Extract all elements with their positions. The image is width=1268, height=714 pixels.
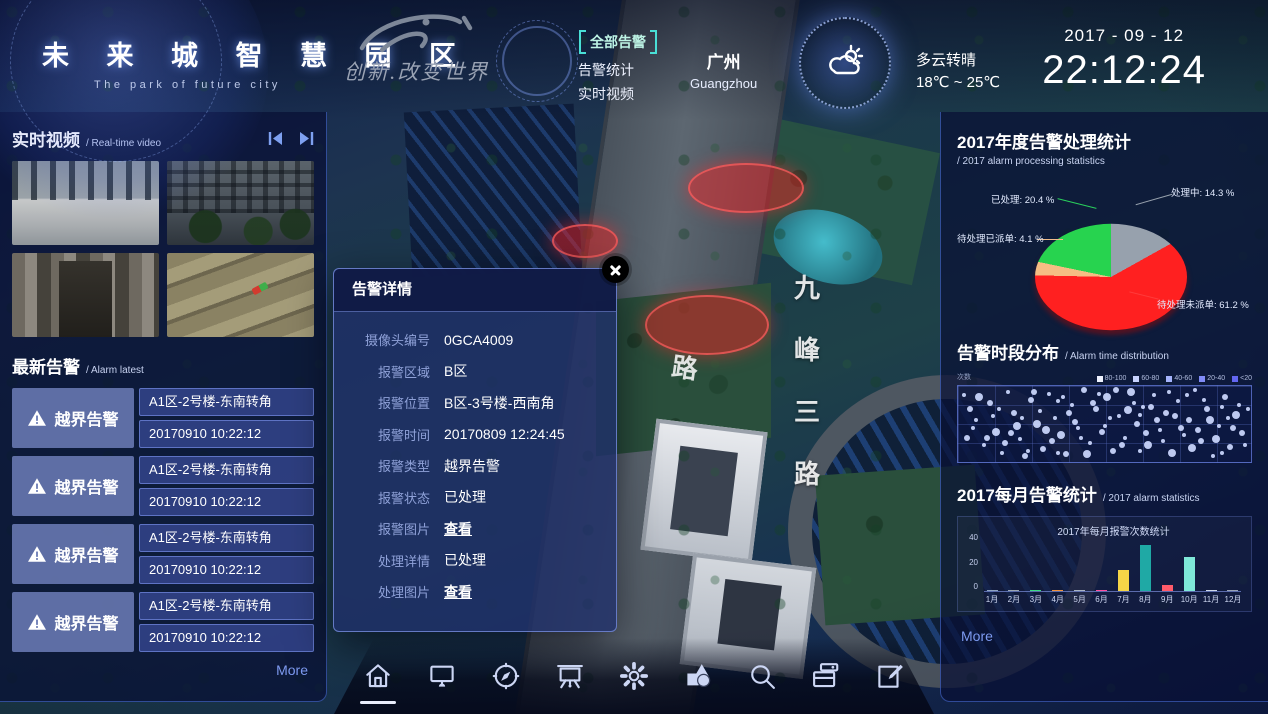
bar-column: 12月 <box>1225 590 1241 592</box>
scatter-dot <box>1168 449 1176 457</box>
view-link[interactable]: 查看 <box>444 519 472 539</box>
bar-column: 1月 <box>984 590 1000 592</box>
field-label: 报警状态 <box>334 488 430 507</box>
legend-item: <20 <box>1232 375 1252 382</box>
ring-decoration <box>502 26 572 96</box>
nav-all-alarms[interactable]: 全部告警 <box>586 33 650 52</box>
city-name-en: Guangzhou <box>690 76 757 91</box>
bar-label: 3月 <box>1030 594 1042 605</box>
warning-icon <box>27 613 47 631</box>
field-value: B区-3号楼-西南角 <box>444 393 554 413</box>
scatter-dot <box>1047 392 1051 396</box>
scatter-dot <box>1222 394 1228 400</box>
settings-gear-icon[interactable] <box>613 655 655 697</box>
bar-label: 10月 <box>1181 594 1198 605</box>
bar-column: 8月 <box>1137 545 1153 591</box>
skip-back-icon[interactable] <box>268 131 284 146</box>
bar-yticks: 40200 <box>964 533 978 591</box>
scatter-dot <box>1123 436 1127 440</box>
alarm-row[interactable]: 越界告警A1区-2号楼-东南转角20170910 10:22:12 <box>12 388 314 448</box>
scatter-dot <box>1006 390 1010 394</box>
scatter-dot <box>1090 400 1096 406</box>
scatter-dot <box>1232 411 1240 419</box>
scatter-dot <box>1134 421 1140 427</box>
scatter-dot <box>1063 451 1069 457</box>
field-value: 0GCA4009 <box>444 332 513 348</box>
nav-alarm-stats[interactable]: 告警统计 <box>578 62 650 79</box>
field-label: 摄像头编号 <box>334 330 430 349</box>
field-label: 报警位置 <box>334 393 430 412</box>
company-slogan: 创新.改变世界 <box>344 56 489 86</box>
pie-section-title: 2017年度告警处理统计 <box>957 128 1131 153</box>
bottom-toolbar <box>334 638 934 714</box>
scatter-plot <box>957 385 1252 463</box>
weather-condition: 多云转晴 <box>916 50 1000 72</box>
field-value: B区 <box>444 361 467 381</box>
scatter-dot <box>1026 449 1030 453</box>
modal-field-row: 报警区域B区 <box>334 356 616 388</box>
alarm-location: A1区-2号楼-东南转角 <box>139 388 314 416</box>
scatter-dot <box>1127 388 1135 396</box>
scatter-dot <box>1083 450 1091 458</box>
modal-field-row: 摄像头编号0GCA4009 <box>334 324 616 356</box>
scatter-dot <box>1144 441 1152 449</box>
modal-field-row: 报警位置B区-3号楼-西南角 <box>334 387 616 419</box>
monitor-icon[interactable] <box>421 655 463 697</box>
datetime-block: 2017 - 09 - 12 22:12:24 <box>1042 26 1206 93</box>
scatter-dot <box>975 393 983 401</box>
modal-fields: 摄像头编号0GCA4009报警区域B区报警位置B区-3号楼-西南角报警时间201… <box>334 312 616 608</box>
scatter-dot <box>1138 413 1142 417</box>
legend-item: 40-60 <box>1166 375 1192 382</box>
stats-more-link[interactable]: More <box>961 628 1252 644</box>
scatter-dot <box>1178 425 1184 431</box>
leader-line <box>1057 198 1096 209</box>
bar-chart: 2017年每月报警次数统计 40200 1月2月3月4月5月6月7月8月9月10… <box>957 516 1252 612</box>
scatter-dot <box>1028 397 1034 403</box>
alarm-time: 20170910 10:22:12 <box>139 488 314 516</box>
field-label: 报警图片 <box>334 519 430 538</box>
bar <box>1118 570 1129 591</box>
modal-field-row: 报警时间20170809 12:24:45 <box>334 419 616 451</box>
scatter-dot <box>1198 438 1204 444</box>
shapes-icon[interactable] <box>677 655 719 697</box>
scatter-dot <box>1211 454 1215 458</box>
close-icon[interactable] <box>602 256 629 283</box>
scatter-dot <box>1072 419 1078 425</box>
bar <box>1008 590 1019 592</box>
scatter-dot <box>1193 388 1197 392</box>
time-label: 22:12:24 <box>1042 48 1206 93</box>
compass-icon[interactable] <box>485 655 527 697</box>
projection-screen-icon[interactable] <box>549 655 591 697</box>
scatter-dot <box>1040 446 1046 452</box>
scatter-dot <box>1066 410 1072 416</box>
scatter-dot <box>1143 430 1149 436</box>
modal-field-row: 处理详情已处理 <box>334 545 616 577</box>
field-value: 20170809 12:24:45 <box>444 426 565 442</box>
modal-title: 告警详情 <box>334 269 616 312</box>
bar-label: 4月 <box>1051 594 1063 605</box>
scatter-dot <box>1070 403 1074 407</box>
alarm-type-badge: 越界告警 <box>12 592 134 652</box>
modal-field-row: 报警图片查看 <box>334 513 616 545</box>
header: 未 来 城 智 慧 园 区 The park of future city 创新… <box>0 0 1268 112</box>
bar-column: 6月 <box>1094 590 1110 592</box>
alarm-time: 20170910 10:22:12 <box>139 420 314 448</box>
scatter-dot <box>1013 422 1021 430</box>
bar <box>1140 545 1151 591</box>
scatter-dot <box>1148 404 1154 410</box>
bar-label: 1月 <box>986 594 998 605</box>
alarm-section-subtitle: / Alarm latest <box>86 365 144 376</box>
legend-item: 80-100 <box>1097 375 1127 382</box>
scatter-dot <box>1018 437 1022 441</box>
field-label: 报警类型 <box>334 456 430 475</box>
bar-ytick: 40 <box>964 533 978 542</box>
warning-icon <box>27 409 47 427</box>
bar-label: 6月 <box>1095 594 1107 605</box>
scatter-dot <box>1182 433 1186 437</box>
alarm-row[interactable]: 越界告警A1区-2号楼-东南转角20170910 10:22:12 <box>12 524 314 584</box>
scatter-dot <box>1020 416 1024 420</box>
scatter-dot <box>1053 416 1057 420</box>
alarm-more-link[interactable]: More <box>12 662 308 678</box>
scatter-dot <box>984 435 990 441</box>
scatter-dot <box>1172 413 1178 419</box>
field-label: 处理详情 <box>334 551 430 570</box>
pie-label-processed: 已处理: 20.4 % <box>991 192 1054 206</box>
bar-ytick: 20 <box>964 558 978 567</box>
weather-text: 多云转晴 18℃ ~ 25℃ <box>916 50 1000 94</box>
bar-label: 12月 <box>1225 594 1242 605</box>
scatter-dot <box>1011 410 1017 416</box>
alarm-time: 20170910 10:22:12 <box>139 556 314 584</box>
scatter-dot <box>1237 403 1241 407</box>
scatter-dot <box>1113 387 1119 393</box>
scatter-dot <box>991 414 995 418</box>
scatter-dot <box>1033 420 1041 428</box>
header-nav: 全部告警 告警统计 实时视频 <box>578 33 650 103</box>
bar-label: 2月 <box>1008 594 1020 605</box>
bar <box>1052 590 1063 592</box>
scatter-section-title: 告警时段分布 <box>957 339 1059 364</box>
bar <box>1184 557 1195 591</box>
leader-line <box>1136 194 1173 205</box>
city-block: 广州 Guangzhou <box>690 48 757 91</box>
scatter-dot <box>1220 451 1224 455</box>
home-icon[interactable] <box>357 655 399 697</box>
scatter-dot <box>1081 387 1087 393</box>
scatter-dot <box>1227 444 1233 450</box>
pie-section-subtitle: / 2017 alarm processing statistics <box>957 156 1105 167</box>
pie-label-processing: 处理中: 14.3 % <box>1171 185 1234 199</box>
scatter-dot <box>1217 424 1221 428</box>
weather-badge <box>799 17 891 109</box>
scatter-dot <box>1117 414 1121 418</box>
alarm-row[interactable]: 越界告警A1区-2号楼-东南转角20170910 10:22:12 <box>12 456 314 516</box>
scatter-dot <box>1176 399 1180 403</box>
bar <box>987 590 998 592</box>
alarm-detail-modal: 告警详情 摄像头编号0GCA4009报警区域B区报警位置B区-3号楼-西南角报警… <box>333 268 617 632</box>
warning-icon <box>27 545 47 563</box>
weather-temperature: 18℃ ~ 25℃ <box>916 72 1000 94</box>
scatter-dot <box>962 393 966 397</box>
scatter-dot <box>987 400 993 406</box>
modal-field-row: 报警类型越界告警 <box>334 450 616 482</box>
bar-column: 9月 <box>1159 585 1175 591</box>
scatter-dot <box>1049 438 1055 444</box>
scatter-dot <box>1204 406 1210 412</box>
nav-realtime-video[interactable]: 实时视频 <box>578 86 650 103</box>
bar-label: 8月 <box>1139 594 1151 605</box>
scatter-dot <box>971 426 975 430</box>
legend-item: 20-40 <box>1199 375 1225 382</box>
scatter-dot <box>1103 424 1107 428</box>
alarm-row[interactable]: 越界告警A1区-2号楼-东南转角20170910 10:22:12 <box>12 592 314 652</box>
scatter-dot <box>1042 426 1050 434</box>
scatter-dot <box>1056 399 1060 403</box>
field-value: 越界告警 <box>444 456 500 476</box>
modal-field-row: 处理图片查看 <box>334 576 616 608</box>
legend-item: 60-80 <box>1133 375 1159 382</box>
scatter-dot <box>1002 440 1008 446</box>
bar-column: 11月 <box>1203 590 1219 592</box>
field-value: 已处理 <box>444 487 486 507</box>
scatter-dot <box>1088 441 1092 445</box>
alarm-type-badge: 越界告警 <box>12 456 134 516</box>
search-icon[interactable] <box>741 655 783 697</box>
scatter-dot <box>1152 393 1156 397</box>
scatter-dot <box>1000 451 1004 455</box>
scatter-dot <box>1158 428 1162 432</box>
alarm-type-badge: 越界告警 <box>12 388 134 448</box>
city-name-cn: 广州 <box>690 48 757 73</box>
scatter-dot <box>1212 435 1220 443</box>
bar <box>1206 590 1217 592</box>
scatter-dot <box>1093 406 1099 412</box>
pie-label-undispatched: 待处理未派单: 61.2 % <box>1157 297 1249 311</box>
scatter-axis-hint: 次数 <box>957 372 971 382</box>
scatter-dot <box>1195 427 1201 433</box>
scatter-dot <box>1119 442 1125 448</box>
scatter-dot <box>1079 436 1083 440</box>
scatter-dot <box>1138 449 1142 453</box>
scatter-dot <box>1056 451 1060 455</box>
scatter-dot <box>997 407 1001 411</box>
view-link[interactable]: 查看 <box>444 582 472 602</box>
scatter-dot <box>1243 443 1247 447</box>
bar-ytick: 0 <box>964 582 978 591</box>
scatter-dot <box>1099 429 1105 435</box>
scatter-dot <box>1103 393 1111 401</box>
alarm-location: A1区-2号楼-东南转角 <box>139 524 314 552</box>
field-label: 报警时间 <box>334 425 430 444</box>
scatter-dot <box>1097 392 1101 396</box>
bar-label: 7月 <box>1117 594 1129 605</box>
bar <box>1096 590 1107 592</box>
scatter-dot <box>1154 417 1160 423</box>
bar-label: 5月 <box>1073 594 1085 605</box>
video-thumbnail[interactable] <box>12 253 159 337</box>
bar-section-title: 2017每月告警统计 <box>957 481 1097 506</box>
scatter-dot <box>964 435 970 441</box>
scatter-dot <box>974 418 978 422</box>
scatter-dot <box>1161 439 1165 443</box>
scatter-dot <box>1031 389 1037 395</box>
scatter-dot <box>1206 416 1214 424</box>
alarm-time: 20170910 10:22:12 <box>139 624 314 652</box>
scatter-dot <box>1008 430 1014 436</box>
alarm-list: 越界告警A1区-2号楼-东南转角20170910 10:22:12越界告警A1区… <box>12 388 314 652</box>
scatter-dot <box>1057 431 1065 439</box>
bar-column: 3月 <box>1028 590 1044 592</box>
scatter-dot <box>1108 416 1112 420</box>
scatter-dot <box>1061 395 1065 399</box>
scatter-dot <box>1163 410 1169 416</box>
alarm-location: A1区-2号楼-东南转角 <box>139 592 314 620</box>
bar-label: 11月 <box>1203 594 1219 605</box>
edit-icon[interactable] <box>869 655 911 697</box>
bar-column: 7月 <box>1115 570 1131 591</box>
scatter-dot <box>1230 425 1236 431</box>
scatter-dot <box>1226 416 1230 420</box>
company-logo-icon <box>348 12 478 54</box>
video-thumbnail[interactable] <box>167 253 314 337</box>
scatter-dot <box>1188 444 1196 452</box>
pie-label-dispatched: 待处理已派单: 4.1 % <box>957 231 1044 245</box>
alarm-section-title: 最新告警 <box>12 353 80 378</box>
bar-label: 9月 <box>1161 594 1173 605</box>
scatter-dot <box>1239 430 1245 436</box>
bar <box>1030 590 1041 592</box>
scatter-dot <box>1038 409 1042 413</box>
bar <box>1074 590 1085 592</box>
scatter-dot <box>1124 406 1132 414</box>
id-card-icon[interactable] <box>805 655 847 697</box>
bar-section-subtitle: / 2017 alarm statistics <box>1103 493 1200 504</box>
scatter-dot <box>1076 426 1080 430</box>
scatter-legend: 80-10060-8040-6020-40<20 <box>1097 375 1252 382</box>
scatter-dot <box>1186 417 1192 423</box>
bar-column: 2月 <box>1006 590 1022 592</box>
skip-forward-icon[interactable] <box>298 131 314 146</box>
scatter-dot <box>1246 407 1250 411</box>
scatter-dot <box>992 428 1000 436</box>
scatter-dot <box>1220 405 1224 409</box>
scatter-dot <box>1202 398 1206 402</box>
field-value: 已处理 <box>444 550 486 570</box>
pie-chart-block: 已处理: 20.4 % 处理中: 14.3 % 待处理已派单: 4.1 % 待处… <box>957 175 1252 325</box>
alarm-location: A1区-2号楼-东南转角 <box>139 456 314 484</box>
bar-column: 5月 <box>1072 590 1088 592</box>
scatter-dot <box>967 406 973 412</box>
right-panel: 2017年度告警处理统计 / 2017 alarm processing sta… <box>940 112 1268 702</box>
bar <box>1227 590 1238 592</box>
scatter-dot <box>1141 405 1145 409</box>
scatter-dot <box>1132 401 1136 405</box>
warning-icon <box>27 477 47 495</box>
date-label: 2017 - 09 - 12 <box>1042 26 1206 46</box>
bar-column: 4月 <box>1050 590 1066 592</box>
modal-field-row: 报警状态已处理 <box>334 482 616 514</box>
bar <box>1162 585 1173 591</box>
scatter-dot <box>1167 390 1171 394</box>
field-label: 处理图片 <box>334 582 430 601</box>
alarm-type-badge: 越界告警 <box>12 524 134 584</box>
bar-column: 10月 <box>1181 557 1197 591</box>
scatter-dot <box>1185 393 1189 397</box>
scatter-dot <box>1022 453 1028 459</box>
scatter-section-subtitle: / Alarm time distribution <box>1065 351 1169 362</box>
partly-cloudy-icon <box>823 41 867 85</box>
field-label: 报警区域 <box>334 362 430 381</box>
scatter-dot <box>982 443 986 447</box>
scatter-dot <box>1110 448 1116 454</box>
bar-plot: 1月2月3月4月5月6月7月8月9月10月11月12月 <box>984 535 1241 592</box>
